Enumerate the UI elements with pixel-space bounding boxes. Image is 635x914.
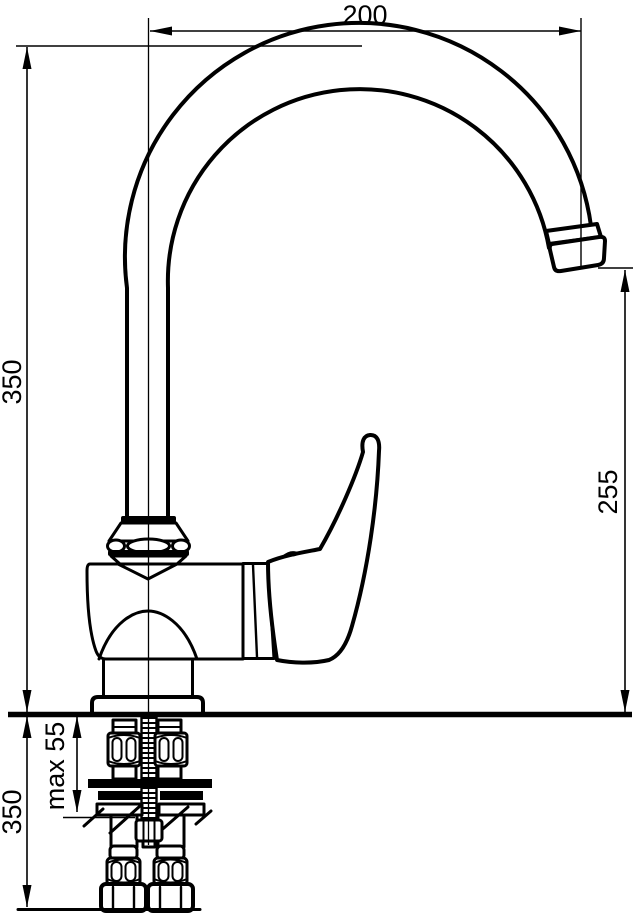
rubber-gasket [88,779,212,788]
dim-label-below-deck-depth: 350 [0,789,27,834]
dimension-outlet-height: 255 [593,268,633,712]
supply-hose-left-upper [108,720,140,779]
base-flange [92,697,203,714]
washer-left [98,791,141,800]
faucet-body [87,564,243,659]
faucet-dimension-diagram: 200 350 255 max 55 350 [0,0,635,914]
handle-lever [268,435,379,663]
washer-right [160,791,203,800]
aerator-tip [550,237,605,271]
dim-label-outlet-height: 255 [593,469,623,514]
supply-hose-right-lower [148,846,193,911]
technical-drawing-page: 200 350 255 max 55 350 [0,0,635,914]
dim-label-spout-reach: 200 [342,0,387,30]
supply-hose-left-lower [101,846,146,911]
spout-arc [125,23,591,522]
dimension-below-deck-depth: 350 [0,716,32,907]
supply-hose-right-upper [155,720,187,779]
dim-label-max-deck-thickness: max 55 [40,722,70,811]
dim-label-height-above-deck: 350 [0,359,27,404]
